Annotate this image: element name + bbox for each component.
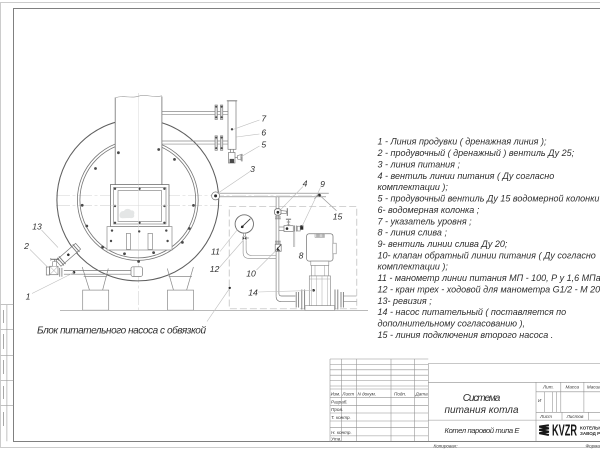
svg-text:8 - линия слива ;: 8 - линия слива ; bbox=[378, 228, 448, 238]
svg-text:Лист: Лист bbox=[539, 414, 552, 419]
svg-text:9: 9 bbox=[320, 179, 325, 189]
svg-text:2 - продувочный ( дренажный: 2 - продувочный ( дренажный ) вентиль Ду… bbox=[377, 148, 575, 158]
svg-text:15 - линия подключения второг: 15 - линия подключения второго насоса . bbox=[378, 330, 554, 340]
svg-text:15: 15 bbox=[333, 211, 343, 221]
svg-text:6- водомерная колонка ;: 6- водомерная колонка ; bbox=[378, 205, 480, 215]
svg-text:Дата: Дата bbox=[415, 392, 429, 397]
svg-text:5: 5 bbox=[261, 140, 266, 150]
svg-text:Формат: Формат bbox=[586, 443, 600, 448]
svg-text:дополнительному согласованию ): дополнительному согласованию ), bbox=[378, 319, 525, 329]
svg-text:комплектации );: комплектации ); bbox=[378, 262, 449, 272]
svg-text:КОТЕЛЬНЫЙ: КОТЕЛЬНЫЙ bbox=[580, 424, 600, 431]
svg-text:9- вентиль линии слива Ду 20;: 9- вентиль линии слива Ду 20; bbox=[378, 239, 508, 249]
svg-text:7 - указатель уровня ;: 7 - указатель уровня ; bbox=[378, 216, 473, 226]
svg-text:5 - продувочный вентиль Ду 15: 5 - продувочный вентиль Ду 15 водомерной… bbox=[378, 194, 600, 204]
svg-text:1 - Линия продувки ( дренажн: 1 - Линия продувки ( дренажная линия ); bbox=[378, 137, 547, 147]
svg-text:10- клапан обратный линии пит: 10- клапан обратный линии питания ( Ду с… bbox=[378, 250, 596, 260]
svg-text:ЗАВОД РОС: ЗАВОД РОС bbox=[580, 431, 600, 436]
svg-text:Лист: Лист bbox=[341, 392, 354, 397]
svg-text:Система: Система bbox=[463, 393, 501, 404]
svg-text:Изм.: Изм. bbox=[331, 392, 341, 397]
svg-text:Блок питательного насоса с обв: Блок питательного насоса с обвязкой bbox=[37, 325, 206, 337]
svg-text:Разраб.: Разраб. bbox=[331, 400, 348, 405]
svg-text:Н. контр.: Н. контр. bbox=[331, 430, 352, 435]
svg-text:11: 11 bbox=[211, 246, 220, 256]
svg-text:Масшт: Масшт bbox=[587, 385, 600, 390]
svg-text:KVZR: KVZR bbox=[552, 423, 577, 440]
svg-text:6: 6 bbox=[261, 128, 266, 138]
svg-text:4: 4 bbox=[303, 178, 308, 188]
svg-text:12: 12 bbox=[210, 264, 220, 274]
svg-text:Утв.: Утв. bbox=[331, 437, 341, 442]
svg-text:Т. контр.: Т. контр. bbox=[331, 415, 351, 420]
svg-text:N докум.: N докум. bbox=[358, 392, 377, 397]
svg-text:Копировал:: Копировал: bbox=[434, 443, 459, 448]
svg-text:Пров.: Пров. bbox=[331, 407, 343, 412]
svg-text:Лит.: Лит. bbox=[542, 385, 554, 390]
svg-text:питания котла: питания котла bbox=[445, 405, 519, 416]
svg-text:11 - манометр линии питания М: 11 - манометр линии питания МП - 100, Р … bbox=[378, 273, 600, 283]
svg-text:10: 10 bbox=[246, 268, 256, 278]
svg-text:4 - вентиль линии питания (: 4 - вентиль линии питания ( Ду согласно bbox=[378, 171, 555, 181]
svg-text:Подп.: Подп. bbox=[394, 392, 406, 397]
svg-text:3 - линия питания ;: 3 - линия питания ; bbox=[378, 159, 461, 169]
svg-text:14 - насос питательный ( пос: 14 - насос питательный ( поставляется по bbox=[378, 307, 567, 317]
svg-text:Котел паровой типа Е: Котел паровой типа Е bbox=[445, 426, 521, 435]
svg-text:1: 1 bbox=[26, 292, 31, 302]
svg-text:Листов: Листов bbox=[566, 414, 584, 419]
svg-text:13- ревизия ;: 13- ревизия ; bbox=[378, 296, 433, 306]
svg-text:8: 8 bbox=[299, 250, 304, 260]
svg-text:3: 3 bbox=[250, 164, 255, 174]
svg-text:14: 14 bbox=[248, 287, 258, 297]
svg-text:13: 13 bbox=[32, 221, 42, 231]
svg-text:2: 2 bbox=[23, 241, 29, 251]
svg-text:Масса: Масса bbox=[566, 385, 580, 390]
svg-text:12 - кран трех - ходовой для: 12 - кран трех - ходовой для манометра G… bbox=[378, 284, 600, 294]
svg-text:комплектации );: комплектации ); bbox=[378, 182, 449, 192]
